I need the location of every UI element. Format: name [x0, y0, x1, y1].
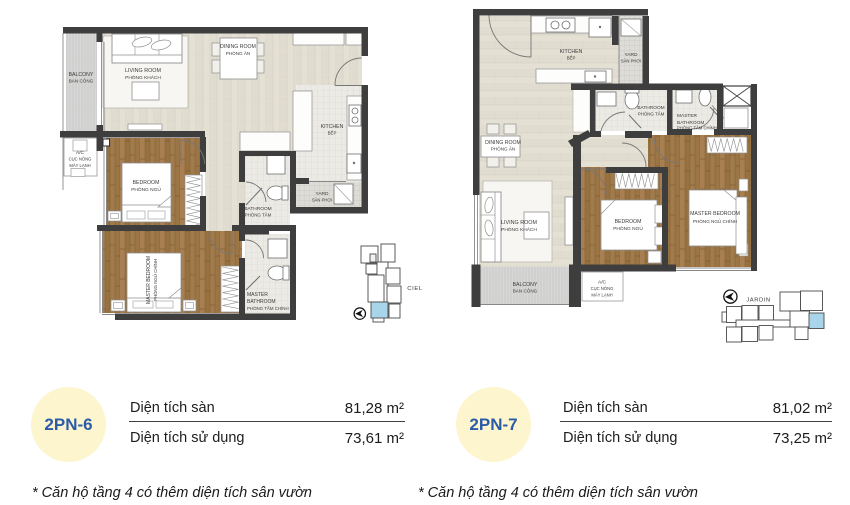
- svg-text:PHÒNG TẮM: PHÒNG TẮM: [245, 213, 272, 218]
- svg-text:JARDIN: JARDIN: [746, 298, 770, 304]
- svg-text:PHÒNG KHÁCH: PHÒNG KHÁCH: [501, 226, 537, 233]
- svg-text:KITCHEN: KITCHEN: [321, 124, 344, 130]
- svg-text:BẾP: BẾP: [567, 56, 576, 61]
- svg-text:BEDROOM: BEDROOM: [133, 180, 160, 186]
- svg-text:PHÒNG ĂN: PHÒNG ĂN: [491, 146, 516, 152]
- svg-text:PHÒNG ĂN: PHÒNG ĂN: [226, 50, 251, 56]
- svg-text:MASTER BEDROOM: MASTER BEDROOM: [690, 211, 740, 217]
- svg-text:SÂN PHƠI: SÂN PHƠI: [621, 59, 641, 64]
- svg-text:BALCONY: BALCONY: [69, 72, 94, 78]
- svg-text:BAN CÔNG: BAN CÔNG: [513, 288, 538, 294]
- svg-text:YARD: YARD: [625, 52, 639, 58]
- svg-text:PHÒNG NGỦ: PHÒNG NGỦ: [131, 186, 161, 193]
- svg-text:PHÒNG NGỦ: PHÒNG NGỦ: [613, 225, 643, 232]
- svg-text:MÁY LẠNH: MÁY LẠNH: [69, 163, 90, 168]
- svg-text:BATHROOM: BATHROOM: [244, 206, 271, 212]
- svg-text:BALCONY: BALCONY: [513, 282, 538, 288]
- svg-text:SÂN PHƠI: SÂN PHƠI: [312, 198, 332, 203]
- svg-text:CIEL: CIEL: [407, 286, 423, 292]
- svg-text:MASTER: MASTER: [677, 113, 698, 119]
- svg-text:A/C: A/C: [76, 150, 85, 156]
- svg-text:YARD: YARD: [316, 191, 330, 197]
- svg-text:MÁY LẠNH: MÁY LẠNH: [591, 293, 612, 298]
- svg-text:MASTER: MASTER: [247, 292, 268, 298]
- svg-text:KITCHEN: KITCHEN: [560, 49, 583, 55]
- svg-text:MASTER BEDROOM: MASTER BEDROOM: [146, 256, 152, 304]
- svg-text:BEDROOM: BEDROOM: [615, 219, 642, 225]
- svg-text:PHÒNG KHÁCH: PHÒNG KHÁCH: [125, 74, 161, 81]
- svg-text:PHÒNG TẮM: PHÒNG TẮM: [638, 112, 665, 117]
- svg-text:BATHROOM: BATHROOM: [637, 105, 664, 111]
- svg-text:BAN CÔNG: BAN CÔNG: [69, 78, 94, 84]
- svg-text:BẾP: BẾP: [328, 131, 337, 136]
- svg-text:CỤC NÓNG: CỤC NÓNG: [591, 286, 614, 291]
- svg-text:LIVING ROOM: LIVING ROOM: [501, 220, 537, 226]
- svg-text:PHÒNG NGỦ CHÍNH: PHÒNG NGỦ CHÍNH: [693, 218, 737, 224]
- svg-text:PHÒNG NGỦ CHÍNH: PHÒNG NGỦ CHÍNH: [153, 259, 158, 301]
- svg-text:DINING ROOM: DINING ROOM: [485, 140, 521, 146]
- svg-text:LIVING ROOM: LIVING ROOM: [125, 68, 161, 74]
- svg-text:PHÒNG TẮM CHÍNH: PHÒNG TẮM CHÍNH: [247, 306, 289, 311]
- svg-text:PHÒNG TẮM CHÍNH: PHÒNG TẮM CHÍNH: [677, 126, 717, 131]
- svg-text:DINING ROOM: DINING ROOM: [220, 44, 256, 50]
- svg-text:CỤC NÓNG: CỤC NÓNG: [69, 157, 92, 162]
- svg-text:BATHROOM: BATHROOM: [247, 299, 276, 305]
- svg-text:A/C: A/C: [598, 280, 607, 286]
